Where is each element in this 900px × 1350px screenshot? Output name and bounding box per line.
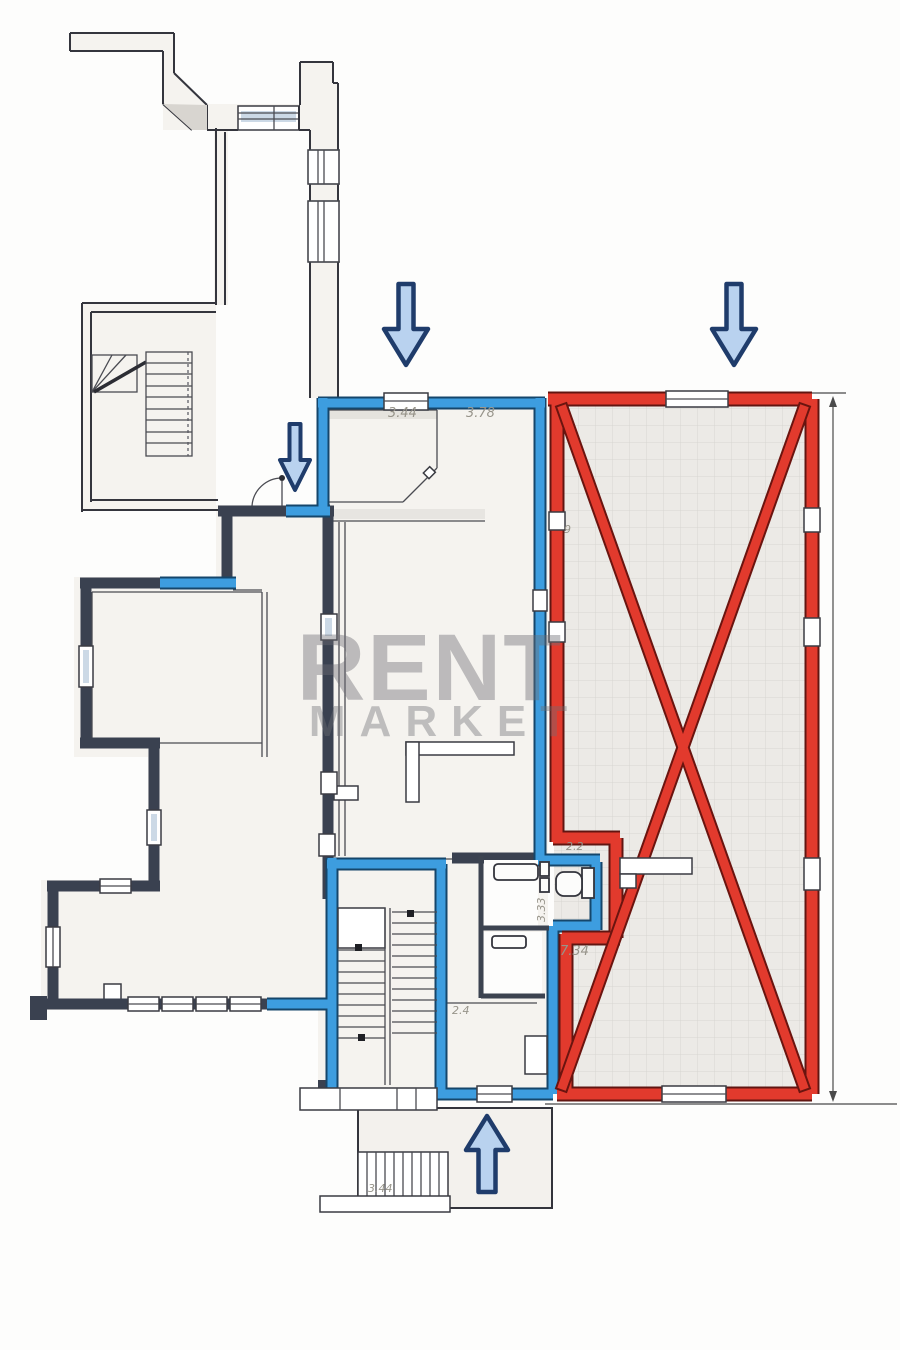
dim-wc-side: 3.33 <box>535 898 548 923</box>
sink-icon <box>494 864 538 880</box>
dim-wc-top: 2.2 <box>566 840 584 853</box>
dim-hall-red: 7.34 <box>560 944 589 959</box>
watermark: RENT MARKET <box>297 615 581 746</box>
entrance-arrow-top-left <box>384 284 428 365</box>
toilet-icon <box>556 872 582 896</box>
dim-porch-stairs: 3.44 <box>368 1182 393 1195</box>
dim-room-small: 2.4 <box>452 1004 470 1017</box>
dim-room-top-right: 3.78 <box>466 406 495 421</box>
dim-room-top-left: 3.44 <box>388 406 417 421</box>
dim-note: 9 <box>564 523 571 536</box>
toilet-tank-icon <box>582 868 594 898</box>
entrance-arrow-top-right <box>712 284 756 365</box>
entrance-arrow-inner <box>280 424 310 490</box>
floor-plan-drawing: 3.44 3.78 9 2.2 3.33 7.34 2.4 3.44 RENT … <box>0 0 900 1350</box>
watermark-line2: MARKET <box>309 697 581 746</box>
counter-icon <box>492 936 526 948</box>
floor-plan-page: 3.44 3.78 9 2.2 3.33 7.34 2.4 3.44 RENT … <box>0 0 900 1350</box>
